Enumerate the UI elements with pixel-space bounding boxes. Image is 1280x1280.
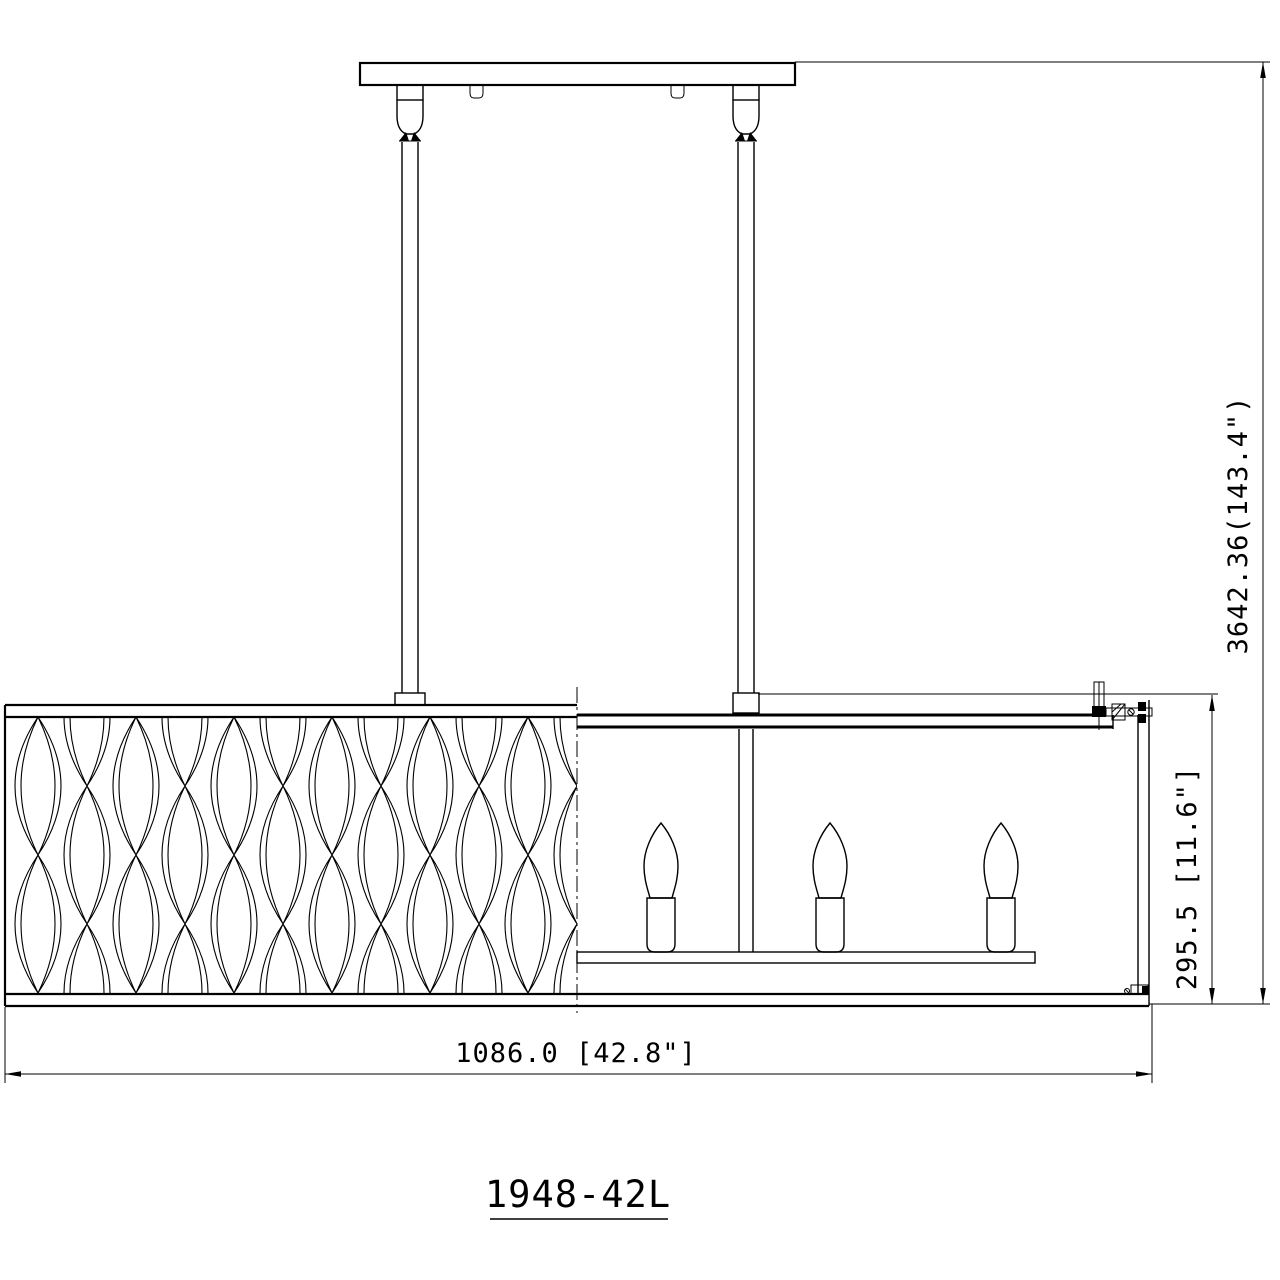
shade-pattern-curve — [309, 717, 355, 1131]
candelabra-socket-3 — [984, 823, 1018, 952]
shade-pattern-curve — [15, 717, 61, 1131]
shade-pattern-curve — [64, 648, 110, 1062]
shade-pattern-curve — [456, 648, 502, 1062]
candelabra-socket-2 — [813, 823, 847, 952]
right-rod-collar — [733, 693, 759, 713]
overall-width-label: 1086.0 [42.8"] — [455, 1038, 697, 1069]
dimension-shade-height: 295.5 [11.6"] — [1172, 695, 1215, 1004]
shade-right-section — [577, 682, 1218, 1006]
drawing-title: 1948-42L — [485, 1173, 671, 1219]
model-number-label: 1948-42L — [485, 1173, 671, 1216]
left-rod-collar — [395, 693, 425, 705]
shade-top-right-clamp — [1092, 682, 1152, 730]
linear-chandelier-dimension-drawing: 3642.36(143.4") 295.5 [11.6"] 1086.0 [42… — [0, 0, 1280, 1280]
dimension-overall-width: 1086.0 [42.8"] — [5, 1004, 1152, 1083]
shade-bottom-right-fitting — [1125, 985, 1149, 994]
shade-pattern-curve — [358, 648, 404, 1062]
shade-pattern-curve — [162, 648, 208, 1062]
shade-pattern-curve — [260, 648, 306, 1062]
right-swivel-hanger — [733, 85, 759, 141]
left-swivel-hanger — [397, 85, 423, 141]
shade-pattern-curve — [407, 717, 453, 1131]
overall-height-label: 3642.36(143.4") — [1223, 396, 1254, 655]
technical-drawing-page: 3642.36(143.4") 295.5 [11.6"] 1086.0 [42… — [0, 0, 1280, 1280]
shade-pattern-curve — [113, 717, 159, 1131]
ceiling-canopy — [360, 63, 795, 98]
lamp-platform — [577, 952, 1035, 963]
canopy-mount-tab — [671, 85, 684, 98]
shade-pattern-curve — [211, 717, 257, 1131]
shade-height-label: 295.5 [11.6"] — [1172, 766, 1203, 990]
canopy-mount-tab — [470, 85, 483, 98]
right-hanging-rod — [733, 85, 759, 952]
candelabra-socket-1 — [644, 823, 678, 952]
left-hanging-rod — [395, 85, 425, 705]
